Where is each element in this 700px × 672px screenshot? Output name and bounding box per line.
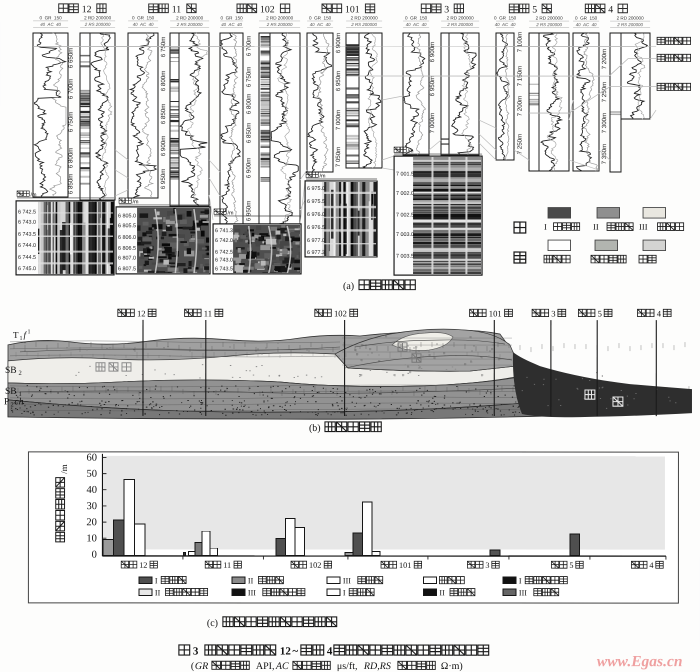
svg-text:3: 3: [551, 308, 555, 318]
svg-text:6 976.0: 6 976.0: [307, 212, 325, 218]
svg-text:6 743.5: 6 743.5: [18, 232, 36, 238]
svg-text:www.Egas.cn: www.Egas.cn: [597, 653, 683, 670]
svg-text:2 RD 200000: 2 RD 200000: [266, 15, 294, 20]
svg-text:2 RD 200000: 2 RD 200000: [351, 16, 379, 21]
svg-text:1: 1: [19, 336, 22, 342]
svg-text:0 GR 150: 0 GR 150: [40, 15, 63, 20]
svg-text:6 745.0: 6 745.0: [18, 266, 36, 272]
svg-text:6 900m: 6 900m: [335, 33, 342, 54]
svg-text:(b): (b): [309, 423, 321, 434]
svg-text:0 GR 150: 0 GR 150: [132, 15, 155, 20]
svg-text:3: 3: [193, 645, 199, 657]
svg-text:6 850m: 6 850m: [160, 104, 167, 125]
svg-text:4: 4: [327, 645, 333, 657]
svg-text:I: I: [519, 576, 522, 585]
svg-text:6 750m: 6 750m: [160, 37, 167, 58]
svg-text:6 807.5: 6 807.5: [118, 266, 136, 272]
svg-text:3: 3: [444, 4, 449, 15]
svg-text:6 743.5: 6 743.5: [215, 266, 233, 272]
svg-text:(c): (c): [207, 618, 218, 629]
svg-text:1: 1: [28, 329, 31, 335]
svg-text:6 750m: 6 750m: [68, 112, 75, 133]
svg-text:102: 102: [334, 308, 347, 318]
svg-text:6 744.0: 6 744.0: [18, 243, 36, 249]
svg-text:~: ~: [292, 645, 298, 657]
svg-text:5: 5: [598, 308, 602, 318]
svg-text:2 RD 200000: 2 RD 200000: [176, 15, 204, 20]
svg-text:7 350m: 7 350m: [601, 144, 608, 165]
svg-text:11: 11: [172, 4, 182, 15]
svg-text:7 003.0: 7 003.0: [396, 232, 414, 238]
svg-text:6 975.0: 6 975.0: [307, 186, 325, 192]
svg-text:40: 40: [86, 485, 97, 496]
svg-text:2 RS 200000: 2 RS 200000: [176, 22, 203, 27]
svg-text:40 AC 40: 40 AC 40: [40, 22, 61, 27]
svg-text:40 AC 40: 40 AC 40: [495, 22, 516, 27]
svg-text:(a): (a): [343, 281, 354, 292]
svg-text:6 741.3: 6 741.3: [215, 228, 233, 234]
svg-text:6 800m: 6 800m: [160, 71, 167, 92]
svg-text:12: 12: [139, 561, 147, 570]
svg-text:10: 10: [86, 533, 97, 544]
svg-text:11: 11: [204, 308, 212, 318]
svg-text:2 RS 200000: 2 RS 200000: [535, 22, 562, 27]
svg-text:6 750m: 6 750m: [246, 67, 253, 88]
svg-text:/m: /m: [228, 210, 234, 216]
svg-text:12: 12: [137, 308, 146, 318]
svg-text:/m: /m: [59, 464, 69, 474]
svg-text:7 300m: 7 300m: [601, 113, 608, 134]
svg-text:6 744.5: 6 744.5: [18, 255, 36, 261]
svg-text:ch: ch: [14, 397, 23, 407]
svg-text:/m: /m: [320, 173, 326, 179]
svg-text:6 742.5: 6 742.5: [18, 209, 36, 215]
svg-text:6 850m: 6 850m: [246, 123, 253, 144]
svg-text:2 RS 200000: 2 RS 200000: [616, 22, 643, 27]
svg-text:6 950m: 6 950m: [335, 71, 342, 92]
svg-text:40 AC 40: 40 AC 40: [221, 22, 242, 27]
svg-text:102: 102: [260, 4, 275, 15]
svg-text:II: II: [593, 222, 599, 232]
svg-text:50: 50: [86, 469, 97, 480]
svg-text:0 GR 150: 0 GR 150: [221, 15, 244, 20]
svg-text:102: 102: [309, 561, 321, 570]
svg-text:20: 20: [86, 517, 97, 528]
svg-text:6 806.5: 6 806.5: [118, 246, 136, 252]
svg-text:/m: /m: [133, 199, 139, 205]
svg-text:6 700m: 6 700m: [68, 79, 75, 100]
svg-text:12: 12: [82, 4, 92, 15]
svg-text:/m: /m: [31, 192, 37, 198]
svg-text:0 GR 150: 0 GR 150: [494, 16, 517, 21]
svg-text:SB: SB: [5, 387, 17, 397]
svg-text:12: 12: [280, 645, 292, 657]
svg-text:II: II: [248, 576, 254, 585]
svg-text:7 000m: 7 000m: [335, 110, 342, 131]
svg-text:6 900m: 6 900m: [429, 42, 436, 63]
svg-text:I: I: [155, 576, 158, 585]
svg-text:7 003.5: 7 003.5: [396, 254, 414, 260]
svg-text:I: I: [343, 588, 346, 597]
svg-text:4: 4: [608, 4, 613, 15]
svg-text:6 743.0: 6 743.0: [18, 220, 36, 226]
svg-text:40 AC 40: 40 AC 40: [406, 22, 427, 27]
svg-text:6 807.0: 6 807.0: [118, 256, 136, 262]
svg-text:0 GR 150: 0 GR 150: [309, 15, 332, 20]
svg-text:7 002.5: 7 002.5: [396, 213, 414, 219]
svg-text:7 100m: 7 100m: [517, 32, 524, 53]
svg-text:III: III: [343, 576, 351, 585]
svg-text:7 000m: 7 000m: [429, 113, 436, 134]
svg-text:μs/ft,: μs/ft,: [337, 661, 358, 672]
svg-text:2 RD 200000: 2 RD 200000: [536, 16, 564, 21]
svg-text:2: 2: [10, 401, 13, 408]
svg-text:6 950m: 6 950m: [160, 169, 167, 190]
svg-text:6 900m: 6 900m: [246, 158, 253, 179]
svg-text:6 800m: 6 800m: [246, 94, 253, 115]
svg-text:40 AC 40: 40 AC 40: [576, 22, 597, 27]
svg-text:6 950m: 6 950m: [246, 201, 253, 222]
svg-text:4: 4: [649, 561, 653, 570]
svg-text:6 900m: 6 900m: [160, 136, 167, 157]
svg-text:5: 5: [569, 561, 573, 570]
svg-text:6 977.3: 6 977.3: [307, 250, 325, 256]
svg-text:II: II: [439, 588, 445, 597]
svg-text:2 RD 200000: 2 RD 200000: [84, 15, 112, 20]
svg-text:III: III: [639, 222, 648, 232]
svg-text:6 806.0: 6 806.0: [118, 235, 136, 241]
svg-text:0: 0: [92, 550, 97, 561]
svg-text:2 RS 200000: 2 RS 200000: [446, 22, 473, 27]
svg-text:/m: /m: [408, 149, 414, 155]
svg-text:I: I: [544, 222, 547, 232]
svg-text:6 805.5: 6 805.5: [118, 223, 136, 229]
svg-text:2 RS 200000: 2 RS 200000: [84, 22, 111, 27]
svg-text:T: T: [13, 330, 19, 340]
svg-text:6 743.0: 6 743.0: [215, 258, 233, 264]
svg-text:6 650m: 6 650m: [68, 48, 75, 69]
svg-text:101: 101: [345, 4, 360, 15]
svg-text:30: 30: [86, 501, 97, 512]
svg-text:III: III: [519, 588, 527, 597]
svg-text:III: III: [248, 588, 256, 597]
svg-text:P: P: [4, 397, 9, 407]
svg-text:6 950m: 6 950m: [429, 76, 436, 97]
svg-text:7 200m: 7 200m: [517, 96, 524, 117]
svg-text:6 800m: 6 800m: [68, 148, 75, 169]
svg-text:40 AC 40: 40 AC 40: [310, 22, 331, 27]
svg-text:Ω·m): Ω·m): [441, 661, 463, 672]
svg-text:101: 101: [399, 561, 411, 570]
svg-text:40 AC 40: 40 AC 40: [133, 22, 154, 27]
svg-text:11: 11: [223, 561, 231, 570]
svg-text:6 977.0: 6 977.0: [307, 238, 325, 244]
svg-text:6 975.5: 6 975.5: [307, 199, 325, 205]
svg-text:2 RD 200000: 2 RD 200000: [447, 16, 475, 21]
svg-text:6 976.5: 6 976.5: [307, 225, 325, 231]
svg-text:2: 2: [18, 370, 21, 377]
svg-text:101: 101: [489, 308, 502, 318]
svg-text:7 001.5: 7 001.5: [396, 172, 414, 178]
svg-text:6 850m: 6 850m: [68, 174, 75, 195]
svg-text:API,: API,: [256, 661, 275, 672]
svg-text:7 250m: 7 250m: [517, 134, 524, 155]
svg-text:4: 4: [657, 309, 662, 319]
svg-text:2 RS 200000: 2 RS 200000: [266, 22, 293, 27]
svg-text:AC: AC: [275, 661, 289, 672]
svg-text:0 GR 150: 0 GR 150: [405, 16, 428, 21]
svg-text:6 742.5: 6 742.5: [215, 250, 233, 256]
svg-text:3: 3: [485, 561, 489, 570]
svg-text:5: 5: [532, 4, 537, 15]
svg-text:GR: GR: [195, 661, 208, 672]
svg-text:II: II: [155, 588, 161, 597]
svg-text:7 050m: 7 050m: [335, 147, 342, 168]
svg-text:RD,RS: RD,RS: [363, 661, 391, 672]
svg-text:2 RD 200000: 2 RD 200000: [617, 16, 645, 21]
svg-text:6 700m: 6 700m: [246, 36, 253, 57]
svg-text:0 GR 150: 0 GR 150: [575, 16, 598, 21]
svg-text:60: 60: [86, 453, 97, 464]
svg-text:7 002.0: 7 002.0: [396, 191, 414, 197]
svg-text:7 200m: 7 200m: [601, 49, 608, 70]
svg-text:6 742.0: 6 742.0: [215, 238, 233, 244]
svg-text:2 RS 200000: 2 RS 200000: [350, 22, 377, 27]
svg-text:6 805.0: 6 805.0: [118, 213, 136, 219]
svg-text:SB: SB: [5, 366, 17, 376]
